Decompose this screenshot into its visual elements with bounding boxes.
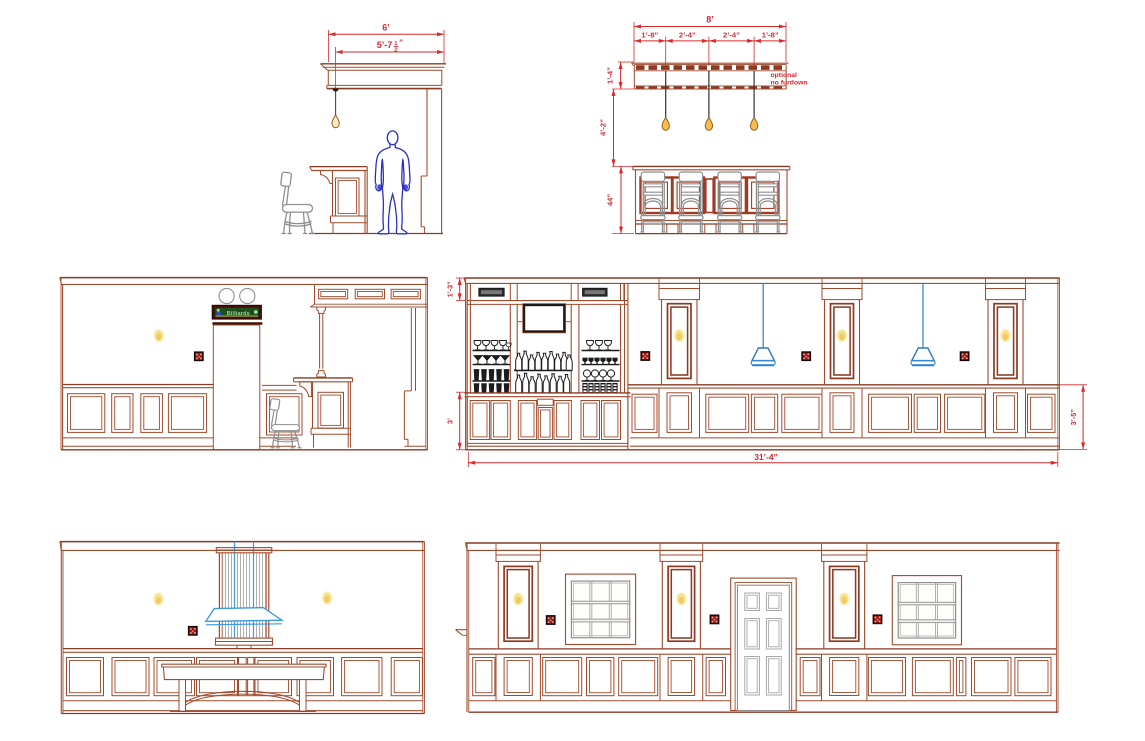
svg-text:1’-8”: 1’-8” [641,30,658,39]
svg-text:5’-7: 5’-7 [377,40,393,50]
svg-text:2’-4”: 2’-4” [723,30,740,39]
svg-text:3’-5”: 3’-5” [1069,409,1078,425]
svg-text:1’-8”: 1’-8” [762,30,779,39]
svg-text:8’: 8’ [706,15,714,25]
svg-text:no furdown: no furdown [771,79,808,86]
svg-text:31’-4”: 31’-4” [754,452,778,462]
svg-text:2: 2 [394,47,397,53]
svg-text:”: ” [399,39,403,48]
svg-text:2’-4”: 2’-4” [679,30,696,39]
svg-text:3’: 3’ [445,418,454,424]
svg-text:1’-3”: 1’-3” [445,281,454,297]
svg-text:4’-2”: 4’-2” [599,119,608,136]
svg-text:optional: optional [771,72,798,79]
svg-text:6’: 6’ [382,23,390,33]
svg-text:44”: 44” [606,194,615,206]
svg-text:1’-4”: 1’-4” [606,67,615,84]
